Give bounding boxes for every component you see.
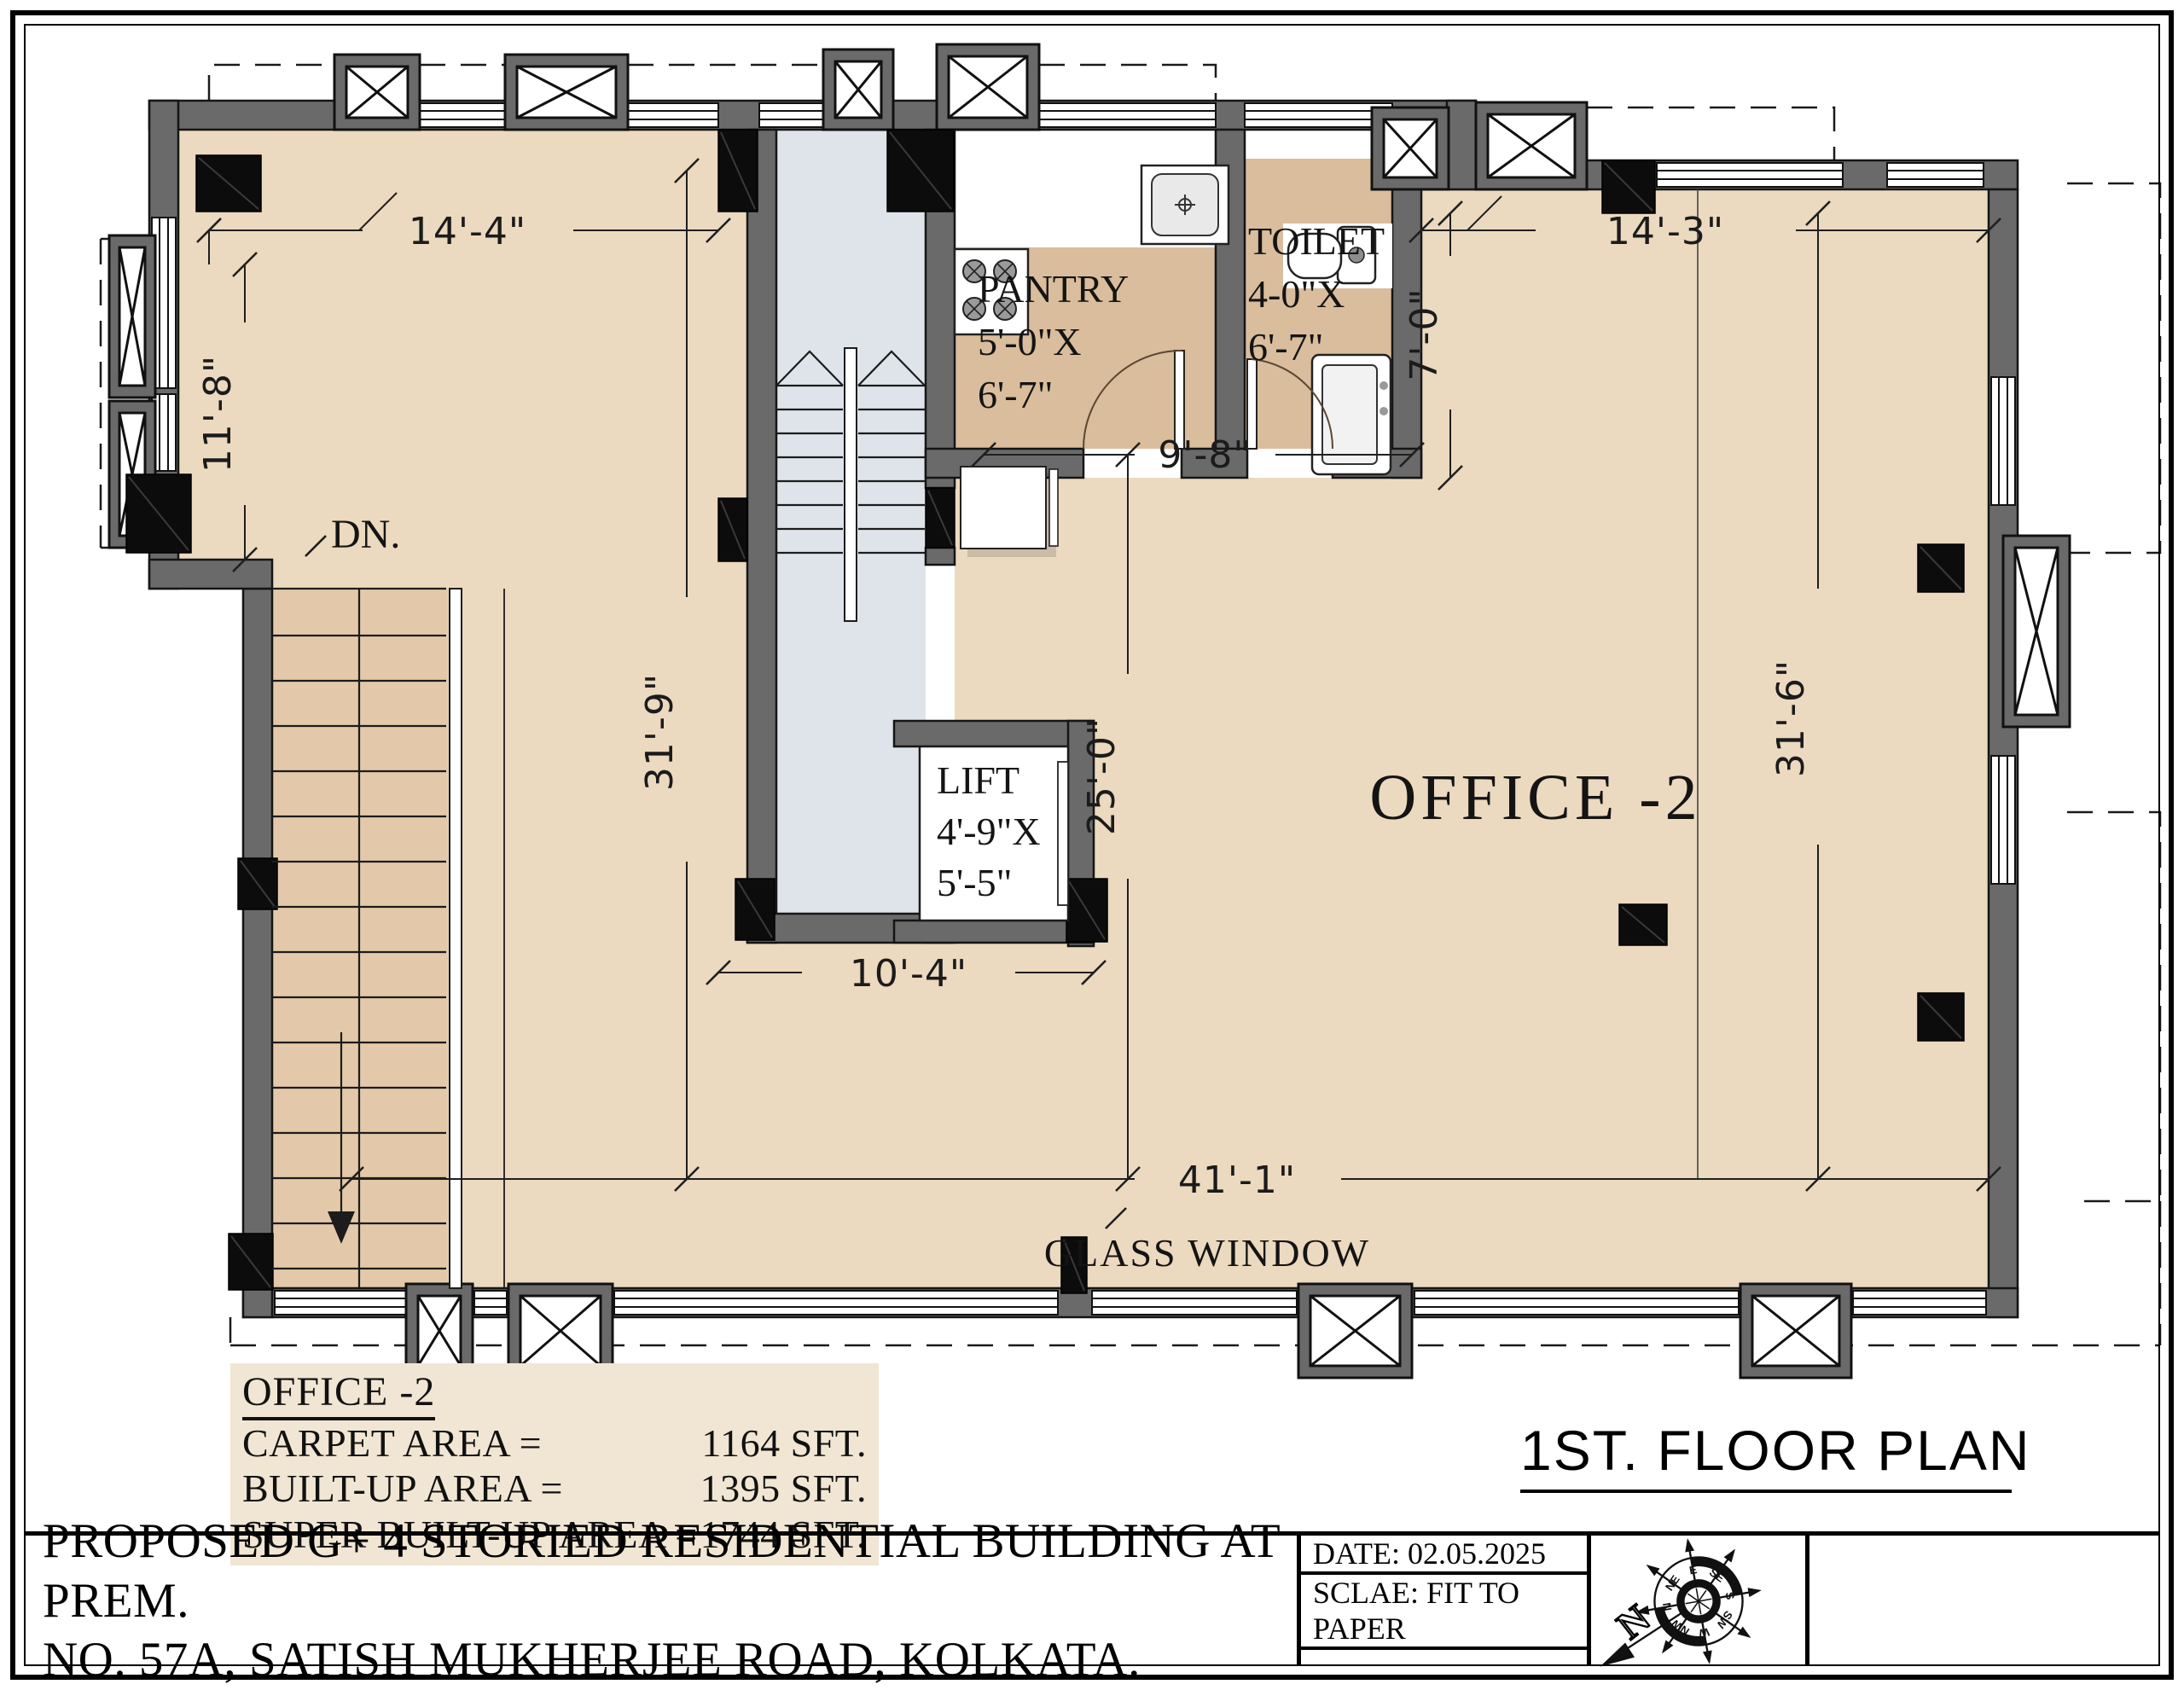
pantry-label-1: PANTRY <box>978 267 1129 311</box>
dim-right-height: 31'-6" <box>1769 659 1813 777</box>
north-letter: N <box>1609 1596 1658 1647</box>
office-label: OFFICE -2 <box>1369 762 1701 833</box>
dim-lobby-height: 25'-0" <box>1080 717 1124 835</box>
date-scale-cell: DATE: 02.05.2025 SCLAE: FIT TO PAPER <box>1297 1536 1587 1666</box>
area-row-value: 1395 SFT. <box>700 1466 867 1511</box>
column <box>1918 993 1964 1041</box>
pantry-label-3: 6'-7" <box>978 373 1053 416</box>
glass-window-label: GLASS WINDOW <box>1044 1231 1370 1275</box>
compass-rose-icon: N NE E SE S SW W NW N <box>1592 1534 1805 1669</box>
project-description: PROPOSED G+ 4 STORIED RESIDENTIAL BUILDI… <box>24 1536 1297 1666</box>
lift-label-2: 4'-9"X <box>937 810 1041 853</box>
column <box>229 1234 273 1290</box>
lift-label-1: LIFT <box>937 758 1019 802</box>
window-icon <box>505 55 628 130</box>
pantry-label-2: 5'-0"X <box>978 320 1082 363</box>
window-icon <box>1740 1284 1851 1378</box>
dim-core-width: 10'-4" <box>850 952 967 996</box>
project-line-1: PROPOSED G+ 4 STORIED RESIDENTIAL BUILDI… <box>43 1512 1297 1630</box>
empty-cell <box>1805 1536 2160 1666</box>
column <box>1619 904 1667 945</box>
column <box>718 498 747 561</box>
compass-dir: S <box>1722 1590 1736 1600</box>
cabinet-icon <box>961 467 1058 557</box>
column <box>1066 879 1107 942</box>
window-icon <box>937 44 1039 130</box>
dim-top-right-width: 14'-3" <box>1606 210 1724 253</box>
column <box>887 130 954 212</box>
column <box>196 155 261 212</box>
dim-bottom-width: 41'-1" <box>1178 1159 1296 1202</box>
window-icon <box>823 49 893 130</box>
sink-icon <box>1141 166 1228 244</box>
date-field: DATE: 02.05.2025 <box>1301 1536 1587 1571</box>
compass-dir: NE <box>1663 1572 1682 1593</box>
dn-label: DN. <box>331 512 400 557</box>
compass-dir: N <box>1660 1601 1674 1612</box>
window-icon <box>109 235 155 398</box>
drawing-sheet: 14'-4" 14'-3" 11'-8" 31'-9" 9'-8" 7'-0" … <box>0 0 2184 1690</box>
column <box>238 858 277 909</box>
dim-toilet-height: 7'-0" <box>1403 287 1446 380</box>
dim-left-height: 31'-9" <box>638 673 682 791</box>
dim-top-left-width: 14'-4" <box>409 210 526 253</box>
shower-tray-icon <box>1312 355 1391 474</box>
compass-cell: N NE E SE S SW W NW N <box>1587 1536 1805 1666</box>
area-row-value: 1164 SFT. <box>701 1420 867 1466</box>
dim-pantry-toilet-width: 9'-8" <box>1158 433 1251 477</box>
window-icon <box>1298 1284 1412 1378</box>
table-row: BUILT-UP AREA = 1395 SFT. <box>242 1466 867 1511</box>
lift-label-3: 5'-5" <box>937 861 1012 904</box>
scale-field: SCLAE: FIT TO PAPER <box>1301 1571 1587 1646</box>
project-line-2: NO. 57A, SATISH MUKHERJEE ROAD, KOLKATA. <box>43 1630 1297 1690</box>
toilet-label-1: TOILET <box>1248 219 1385 263</box>
area-table-heading: OFFICE -2 <box>242 1368 435 1420</box>
lift-door-icon <box>1058 762 1068 905</box>
table-row: CARPET AREA = 1164 SFT. <box>242 1420 867 1466</box>
area-row-label: CARPET AREA = <box>242 1420 542 1466</box>
window-icon <box>2003 536 2070 727</box>
column <box>718 130 758 212</box>
column <box>926 488 955 548</box>
window-icon <box>1372 107 1449 189</box>
window-icon <box>1476 102 1587 189</box>
area-row-label: BUILT-UP AREA = <box>242 1466 563 1511</box>
column <box>126 474 191 553</box>
toilet-label-3: 6'-7" <box>1248 325 1323 369</box>
window-icon <box>334 55 420 130</box>
empty-row <box>1301 1646 1587 1666</box>
dim-top-left-height: 11'-8" <box>196 355 240 473</box>
column <box>1918 544 1964 592</box>
column <box>1602 160 1655 213</box>
toilet-label-2: 4-0"X <box>1248 272 1345 316</box>
title-block: PROPOSED G+ 4 STORIED RESIDENTIAL BUILDI… <box>24 1531 2160 1666</box>
page-title: 1ST. FLOOR PLAN <box>1520 1418 2012 1493</box>
column <box>735 879 775 940</box>
